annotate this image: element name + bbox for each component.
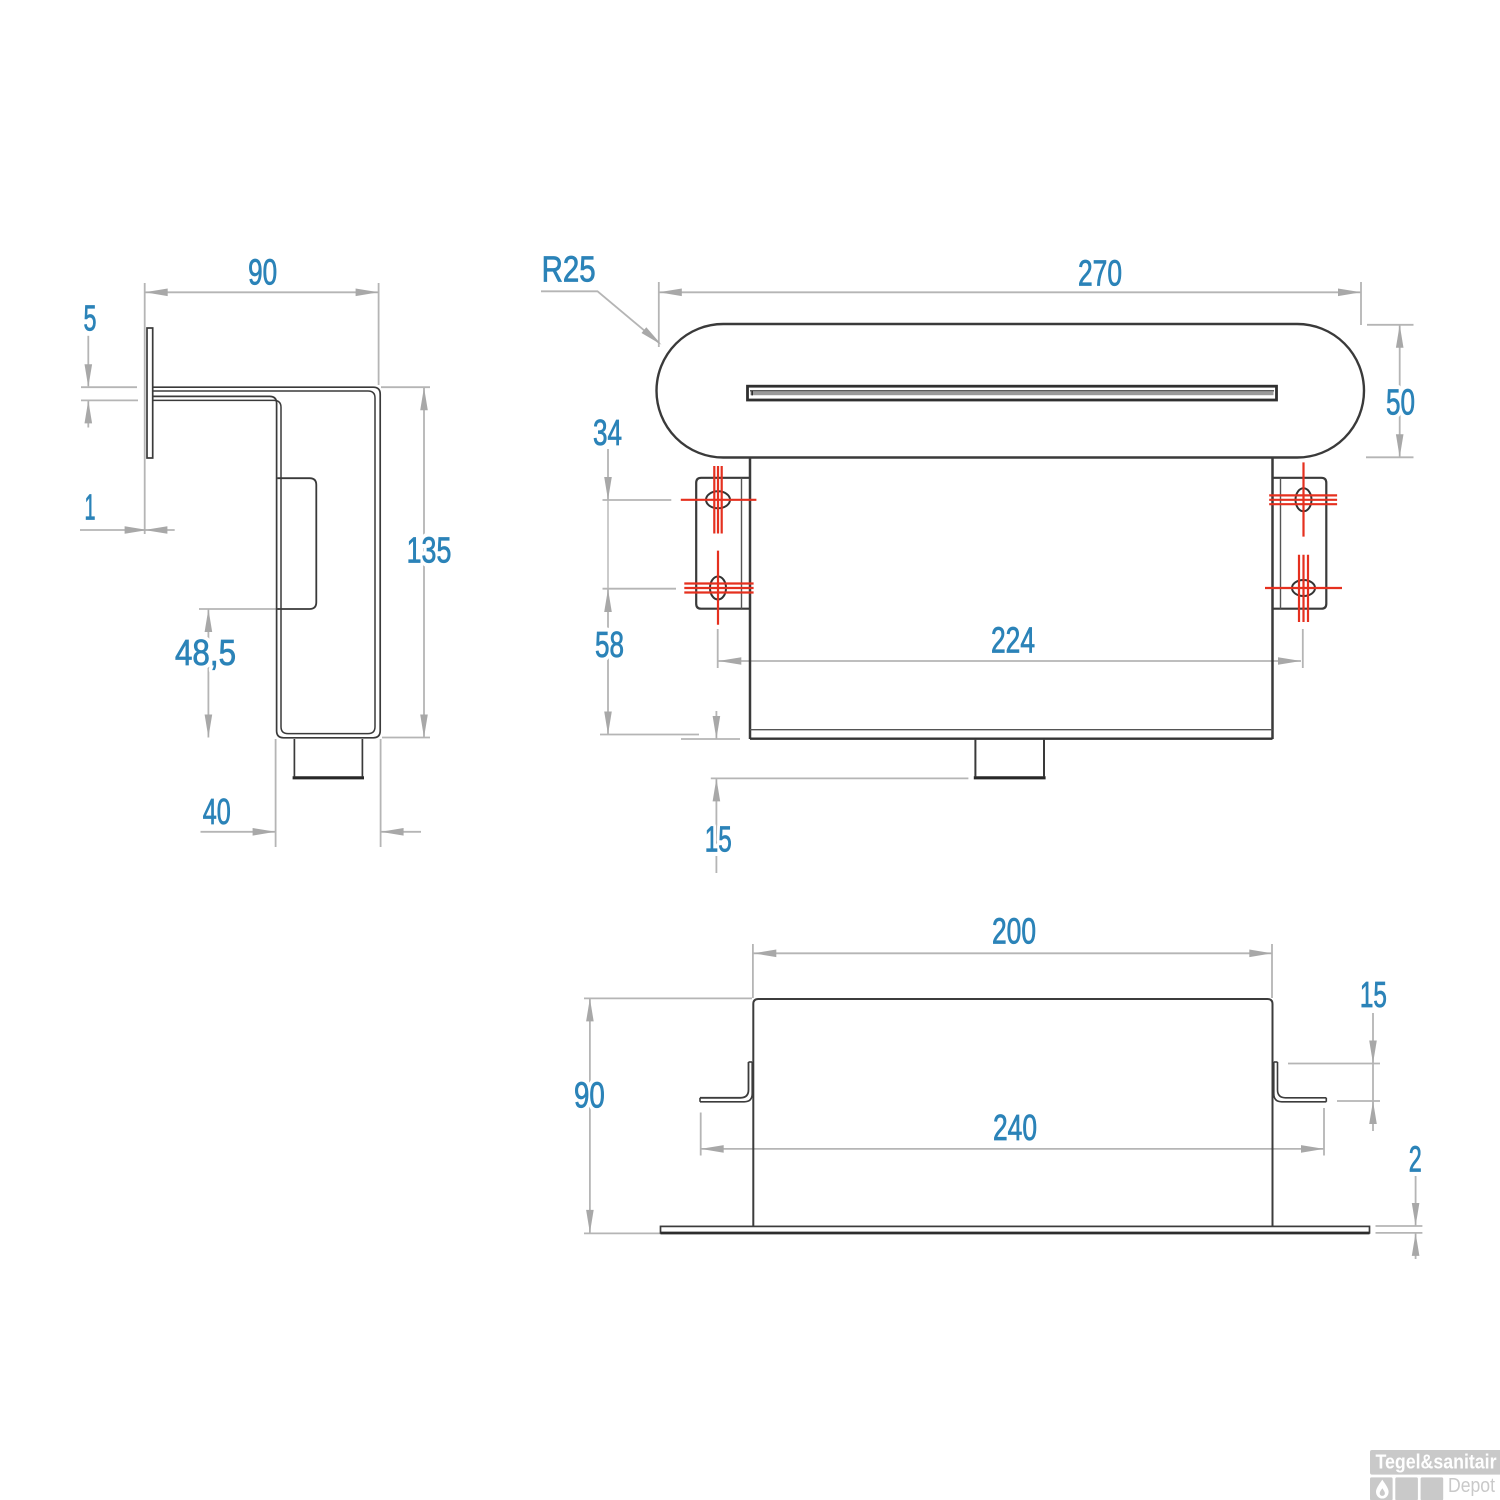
svg-text:48,5: 48,5 [175,632,236,673]
svg-text:58: 58 [595,624,624,665]
svg-text:270: 270 [1078,252,1122,293]
svg-text:15: 15 [1360,974,1387,1015]
svg-text:90: 90 [248,252,277,293]
svg-text:Tegel&sanitair: Tegel&sanitair [1376,1452,1497,1474]
svg-text:240: 240 [993,1107,1037,1148]
svg-text:224: 224 [991,620,1035,661]
svg-text:2: 2 [1409,1139,1422,1180]
svg-text:15: 15 [705,818,732,859]
svg-text:5: 5 [84,297,97,338]
svg-text:200: 200 [992,910,1036,951]
svg-text:34: 34 [593,412,622,453]
svg-text:90: 90 [574,1074,605,1115]
svg-text:135: 135 [407,530,452,571]
svg-text:50: 50 [1386,381,1415,422]
svg-text:1: 1 [85,486,96,527]
svg-text:Depot: Depot [1448,1475,1495,1497]
svg-text:40: 40 [203,791,231,832]
svg-text:R25: R25 [542,249,596,290]
